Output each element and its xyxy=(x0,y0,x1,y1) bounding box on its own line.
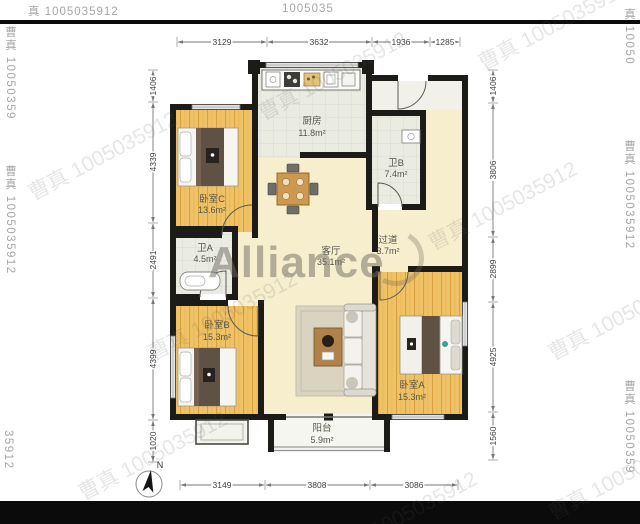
balcony-label: 阳台 xyxy=(312,422,331,434)
compass: N xyxy=(136,460,163,497)
bedroom-b-bed xyxy=(178,348,236,406)
dim-bottom-1: 3149 xyxy=(213,480,232,490)
dim-left-3: 2491 xyxy=(148,250,158,269)
dim-bottom-3: 3086 xyxy=(405,480,424,490)
dim-top-2: 3632 xyxy=(310,37,329,47)
bay-window-box xyxy=(196,420,248,444)
dim-top-1: 3129 xyxy=(213,37,232,47)
sink-icon xyxy=(324,72,338,87)
cutting-board-icon xyxy=(304,73,320,86)
kitchen-label: 厨房 xyxy=(302,115,321,127)
bath-b-label: 卫B xyxy=(388,158,404,169)
dim-right-4: 4925 xyxy=(488,347,498,366)
counter-box-icon xyxy=(342,73,355,86)
dim-right-5: 1560 xyxy=(488,426,498,445)
living-room-area: 35.1m² xyxy=(317,257,345,267)
dim-right-3: 2899 xyxy=(488,259,498,278)
kitchen-north-window xyxy=(266,63,358,67)
sofa xyxy=(344,304,376,396)
bath-a-area: 4.5m² xyxy=(193,254,216,264)
bedroom-a-label: 卧室A xyxy=(399,379,425,391)
bedroom-b-label: 卧室B xyxy=(204,319,229,331)
kitchen-area: 11.8m² xyxy=(298,128,325,138)
compass-n-label: N xyxy=(157,460,164,470)
dimensions-right: 1406 3806 2899 4925 1560 xyxy=(488,70,498,460)
dim-left-2: 4339 xyxy=(148,152,158,171)
bedroom-c-area: 13.6m² xyxy=(198,205,226,215)
floor-plan-svg: 厨房 11.8m² 卫B 7.4m² 卧室C 13.6m² 卫A 4.5m² 客… xyxy=(0,0,640,524)
dim-left-1: 1406 xyxy=(148,76,158,95)
floorplan-screenshot: 厨房 11.8m² 卫B 7.4m² 卧室C 13.6m² 卫A 4.5m² 客… xyxy=(0,0,640,524)
hallway-label: 过道 xyxy=(378,234,398,246)
fridge-icon xyxy=(266,72,280,87)
bath-b-sink xyxy=(402,130,420,143)
dim-left-5: 1020 xyxy=(148,431,158,450)
right-wall-window xyxy=(463,302,467,346)
dim-right-2: 3806 xyxy=(488,160,498,179)
bedroom-c-bed xyxy=(178,128,238,186)
coffee-table xyxy=(314,328,342,366)
dim-top-4: 1285 xyxy=(436,37,455,47)
bedroom-c-label: 卧室C xyxy=(199,193,225,205)
bedroom-a-bed xyxy=(400,316,462,374)
dim-top-3: 1936 xyxy=(392,37,411,47)
corridor-floor xyxy=(426,110,462,210)
dim-left-4: 4399 xyxy=(148,349,158,368)
hallway-area: 3.7m² xyxy=(376,246,399,256)
bedroom-b-area: 15.3m² xyxy=(203,332,231,342)
dim-bottom-2: 3808 xyxy=(308,480,327,490)
dimensions-bottom: 3149 3808 3086 xyxy=(180,480,458,490)
entry-floor xyxy=(372,81,462,110)
stove-icon xyxy=(284,72,300,87)
bedroom-b-window xyxy=(171,336,175,398)
balcony-area: 5.9m² xyxy=(310,435,333,445)
dim-right-1: 1406 xyxy=(488,76,498,95)
kitchen-counter xyxy=(262,70,360,90)
bedroom-a-window xyxy=(392,415,444,419)
bath-a-label: 卫A xyxy=(197,243,214,254)
living-room-label: 客厅 xyxy=(321,245,341,257)
bedroom-a-area: 15.3m² xyxy=(398,392,426,402)
dimensions-left: 1406 4339 2491 4399 1020 xyxy=(148,70,158,462)
dimensions-top: 3129 3632 1936 1285 xyxy=(177,37,460,47)
bedroom-c-window xyxy=(192,105,240,109)
bath-b-area: 7.4m² xyxy=(384,169,407,179)
bathtub xyxy=(180,272,220,290)
